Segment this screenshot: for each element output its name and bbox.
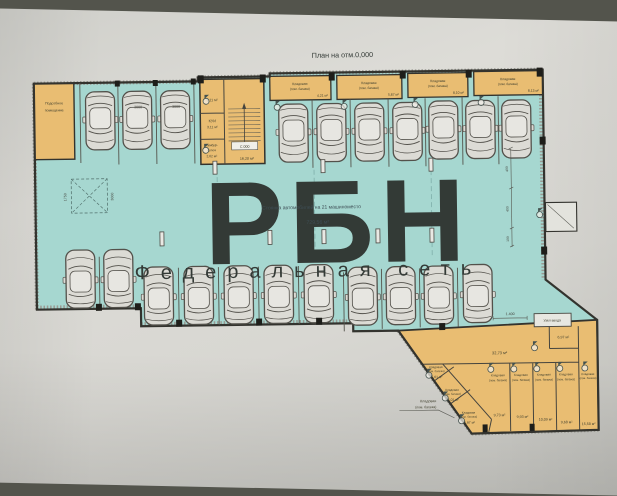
car [276, 104, 312, 162]
storage-room-area: 9,93 м² [517, 415, 530, 419]
parking-area: 729,56 м² [306, 220, 329, 226]
dim-label: 400 [505, 166, 509, 172]
dim-label: 3000 [110, 193, 114, 201]
storage-room-area: 10,09 м² [539, 417, 554, 421]
entry-node-room: Узел ввода [534, 313, 571, 327]
storage-room-label: Кладовая [292, 82, 307, 86]
storage-room-area: 9,68 м² [561, 420, 574, 424]
stair-core: 3,11 м² КУИ 3,11 м² Тамбур- шлюз 2,62 м²… [200, 78, 265, 164]
plan-title: План на отм.0,000 [312, 50, 373, 60]
storage-room-label: Кладовая [581, 372, 594, 376]
floor-plan-drawing: План на отм.0,000 32,73 м² 6,97 м² Кладо… [0, 0, 617, 469]
dim-label: 1750 [63, 193, 67, 201]
storage-room-label: (пом. багажа) [415, 405, 436, 409]
entrance-vestibule [546, 202, 577, 231]
car [157, 90, 193, 148]
storage-room-area: 4,21 м² [317, 94, 329, 98]
dim-label: 400 [506, 206, 510, 212]
car [352, 103, 388, 161]
dim-label: 3000 [172, 105, 180, 109]
storage-room-area: 9,73 м² [494, 413, 507, 417]
level-mark: С.000 [240, 145, 250, 149]
storage-room-label: (пом. багажа) [512, 378, 530, 382]
car [426, 101, 462, 159]
storage-room-label: (пом. багажа) [557, 377, 575, 381]
storage-room-label: Кладовая [500, 77, 515, 81]
utility-room: Подсобное помещение [34, 83, 75, 160]
storage-room-label: (пом. багажа) [428, 84, 448, 88]
dim-label: 3000 [134, 105, 142, 109]
external-storage-label: Кладовая (пом. багажа) [399, 399, 454, 419]
storage-room-label: Кладовая [559, 372, 573, 376]
car [390, 102, 426, 160]
tambur-label: Тамбур- [205, 143, 217, 147]
storage-room-label: (пом. багажа) [498, 82, 518, 86]
kui-room-label: КУИ [209, 119, 217, 123]
storage-room-area: 5,87 м² [388, 93, 400, 97]
plan-layer: План на отм.0,000 32,73 м² 6,97 м² Кладо… [0, 0, 617, 469]
storage-room-label: Кладовая [491, 373, 505, 377]
storage-room-label: (пом. багажа) [290, 87, 310, 91]
storage-room-label: (пом. багажа) [359, 86, 379, 90]
car [101, 249, 137, 307]
dim-label: 100 [506, 236, 510, 242]
storage-room-label: Кладовая [430, 79, 445, 83]
utility-room-label: помещение [45, 108, 64, 112]
storage-room-label: Кладовая [537, 373, 551, 377]
storage-room-area: 8,10 м² [453, 91, 465, 95]
storage-room-label: Кладовая [420, 399, 436, 403]
storage-room-label: (пом. багажа) [535, 377, 553, 381]
car [314, 103, 350, 161]
car [119, 91, 155, 149]
dim-label: 1.400 [506, 312, 515, 316]
utility-room-label: Подсобное [45, 101, 63, 105]
storage-room-area: 15,58 м² [582, 422, 597, 426]
kui-room-area: 3,11 м² [207, 125, 219, 129]
storage-room-label: (пом. багажа) [489, 378, 507, 382]
storage-room-label: Кладовая [514, 373, 528, 377]
entry-node-label: Узел ввода [543, 318, 561, 322]
storage-room-label: Кладовая [361, 81, 376, 85]
storage-room-area: 8,13 м² [528, 89, 540, 93]
corridor-area-label: 32,73 м² [492, 350, 508, 355]
car [463, 100, 499, 158]
car [499, 100, 535, 158]
car [82, 92, 118, 150]
parking-note: Стоянка автомобилей на 21 машиноместо [262, 203, 361, 211]
ne-room-area-label: 6,97 м² [558, 335, 571, 339]
car [63, 250, 99, 308]
storage-room-label: (пом. багажа) [580, 376, 597, 380]
